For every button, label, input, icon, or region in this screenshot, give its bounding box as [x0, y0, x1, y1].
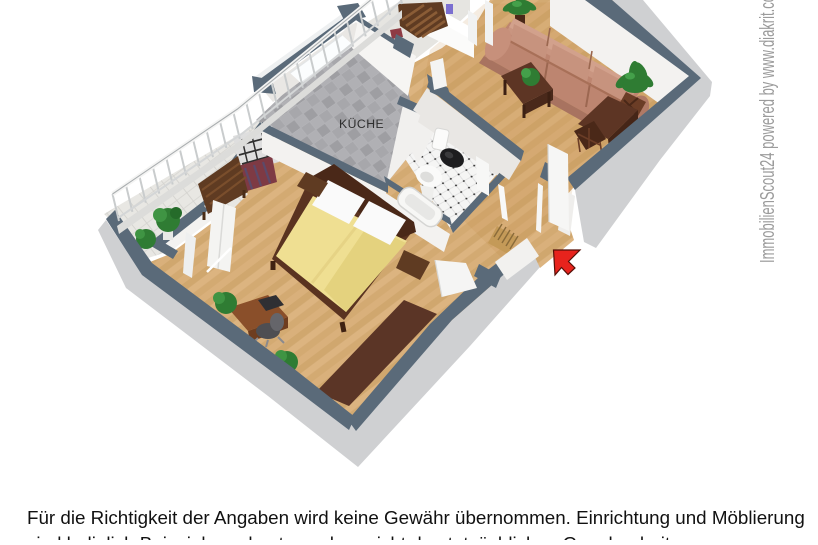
svg-text:KÜCHE: KÜCHE [339, 117, 384, 131]
svg-text:sind lediglich Beispiele und e: sind lediglich Beispiele und entsprechen… [27, 533, 696, 540]
svg-text:Für die Richtigkeit der Angabe: Für die Richtigkeit der Angaben wird kei… [27, 507, 805, 528]
svg-text:ImmobilienScout24 powered by w: ImmobilienScout24 powered by www.diakrit… [756, 0, 779, 263]
